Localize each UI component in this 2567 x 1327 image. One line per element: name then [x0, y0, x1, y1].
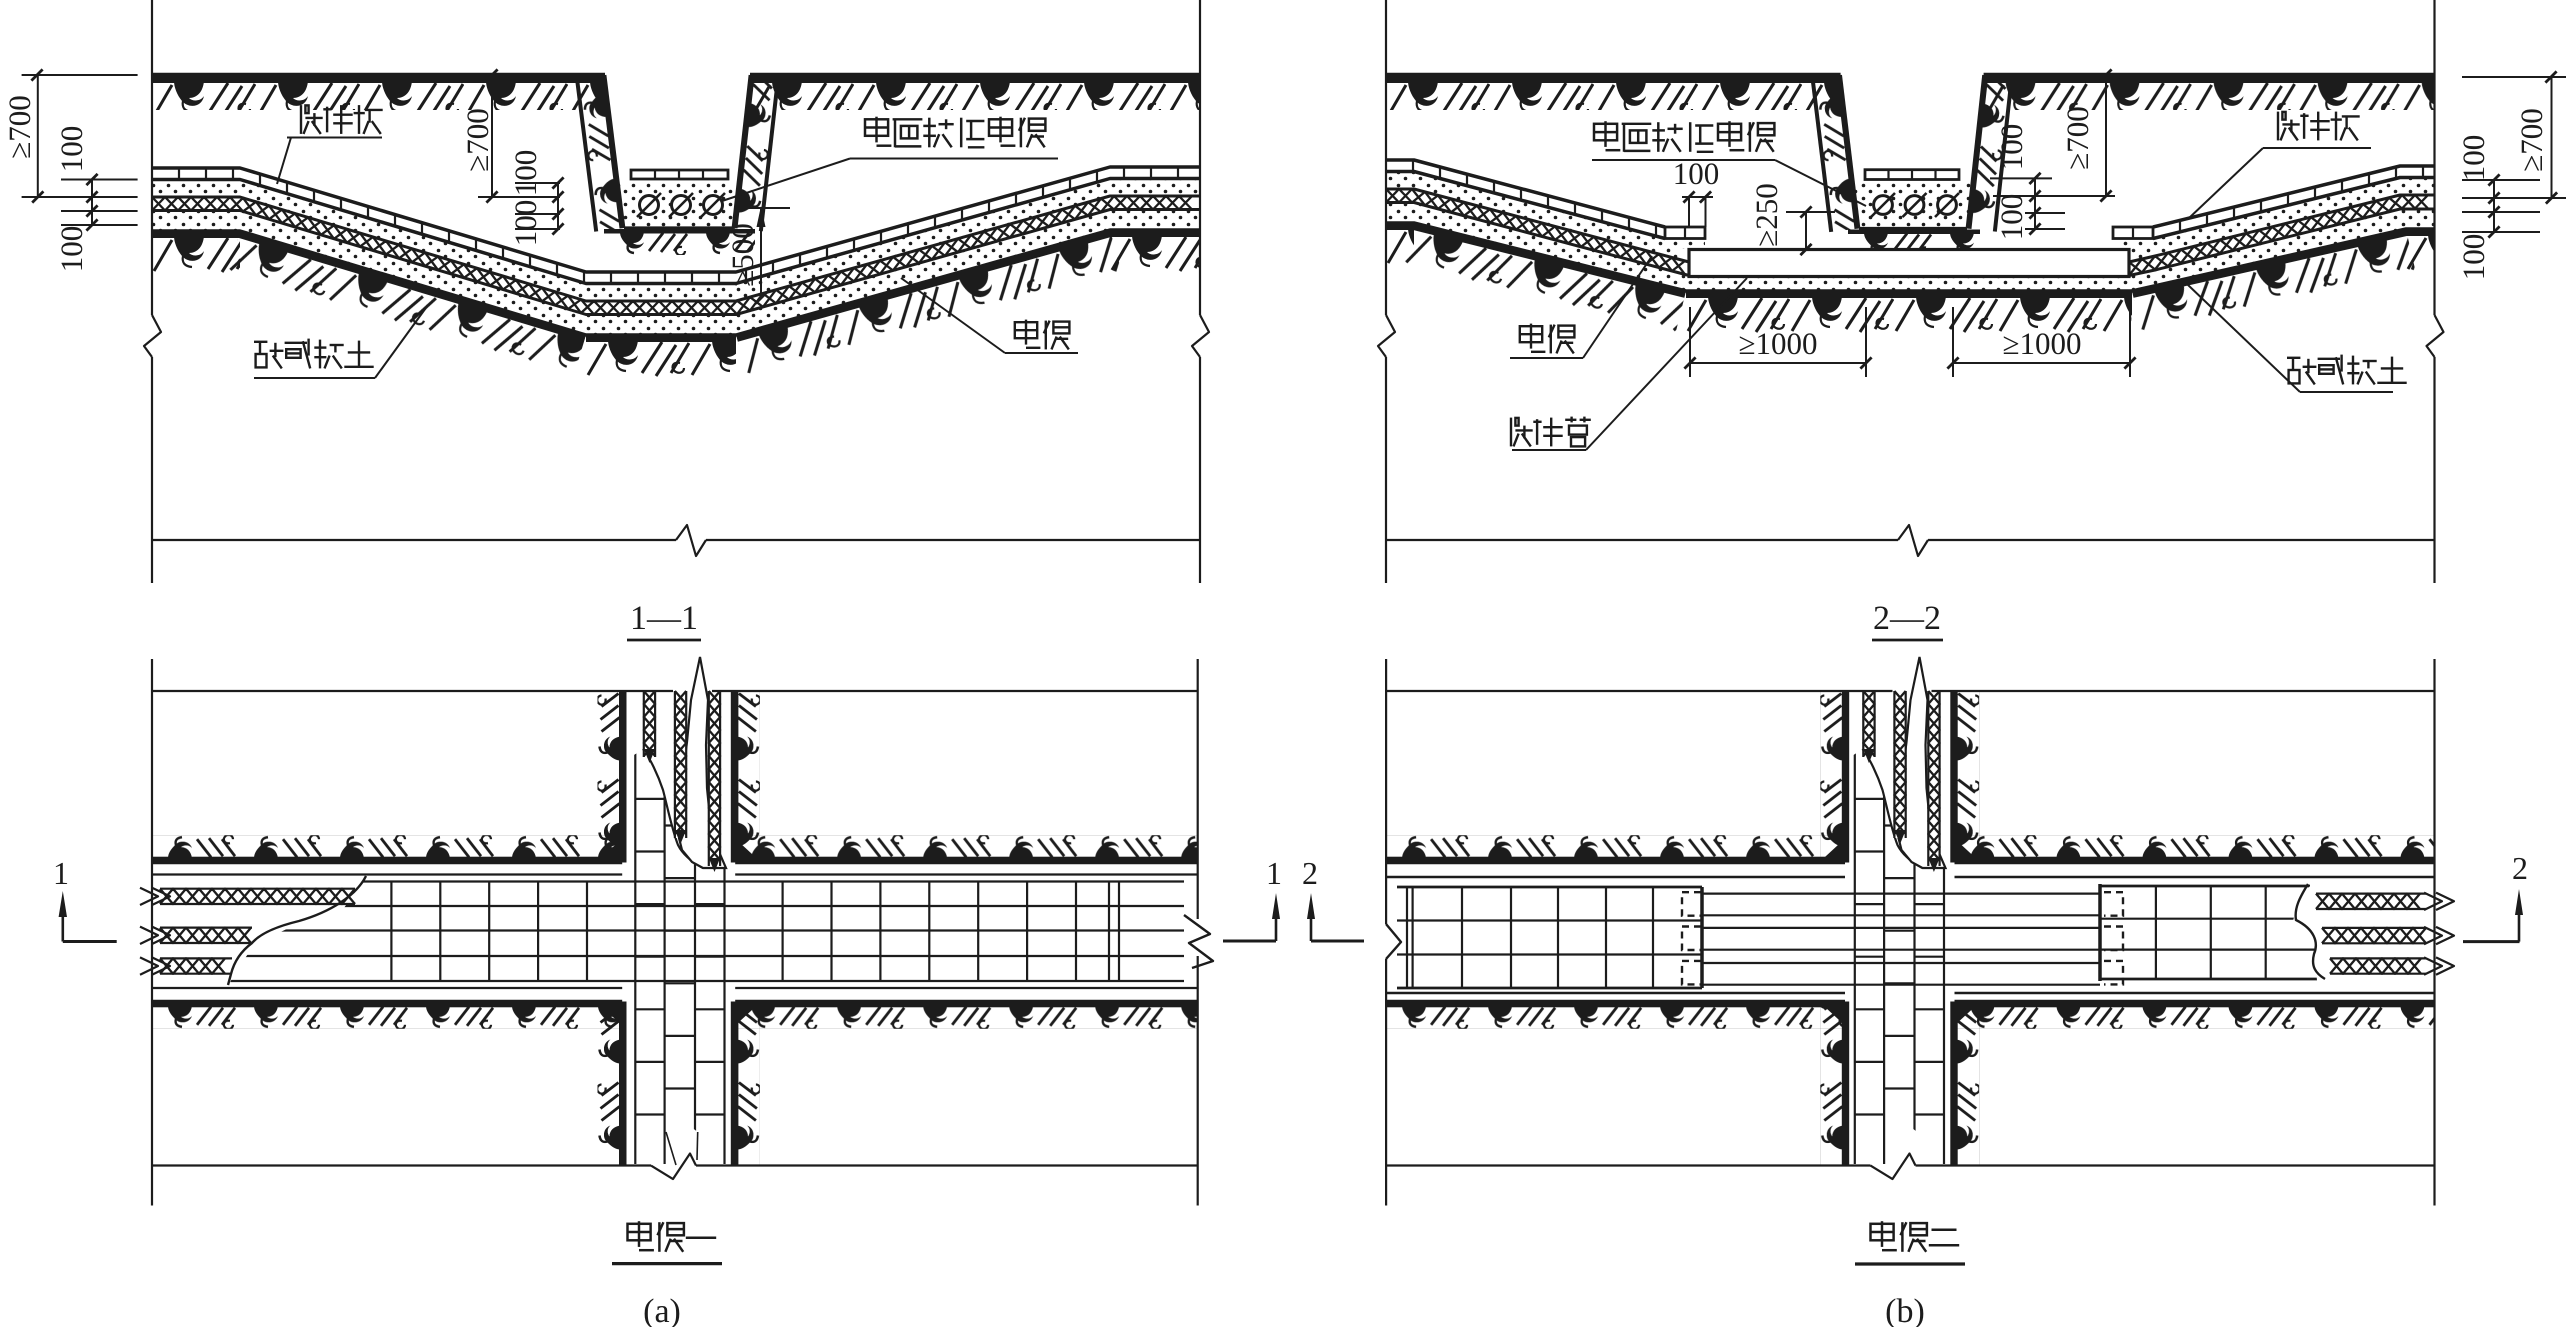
svg-text:100: 100: [1673, 156, 1720, 191]
svg-text:100: 100: [54, 226, 89, 273]
svg-text:100: 100: [54, 126, 89, 173]
svg-text:≥700: ≥700: [2514, 108, 2549, 172]
svg-text:≥700: ≥700: [460, 108, 495, 172]
svg-text:1: 1: [53, 855, 69, 891]
svg-text:≥1000: ≥1000: [2002, 326, 2081, 361]
svg-text:≥700: ≥700: [2060, 106, 2095, 170]
svg-text:≥1000: ≥1000: [1738, 326, 1817, 361]
svg-text:100: 100: [2456, 135, 2491, 182]
svg-text:100: 100: [508, 200, 543, 247]
svg-text:100: 100: [508, 150, 543, 197]
svg-text:≥700: ≥700: [2, 95, 37, 159]
svg-text:(b): (b): [1885, 1293, 1925, 1327]
svg-text:2—2: 2—2: [1873, 600, 1941, 637]
svg-text:2: 2: [1302, 855, 1318, 891]
svg-text:≥500: ≥500: [725, 223, 760, 287]
svg-text:100: 100: [2456, 234, 2491, 281]
svg-text:1—1: 1—1: [630, 600, 698, 637]
svg-text:100: 100: [1994, 124, 2029, 171]
svg-text:1: 1: [1266, 855, 1282, 891]
svg-text:(a): (a): [643, 1293, 681, 1327]
svg-text:100: 100: [1994, 194, 2029, 241]
svg-text:2: 2: [2512, 850, 2528, 886]
svg-text:≥250: ≥250: [1749, 183, 1784, 247]
